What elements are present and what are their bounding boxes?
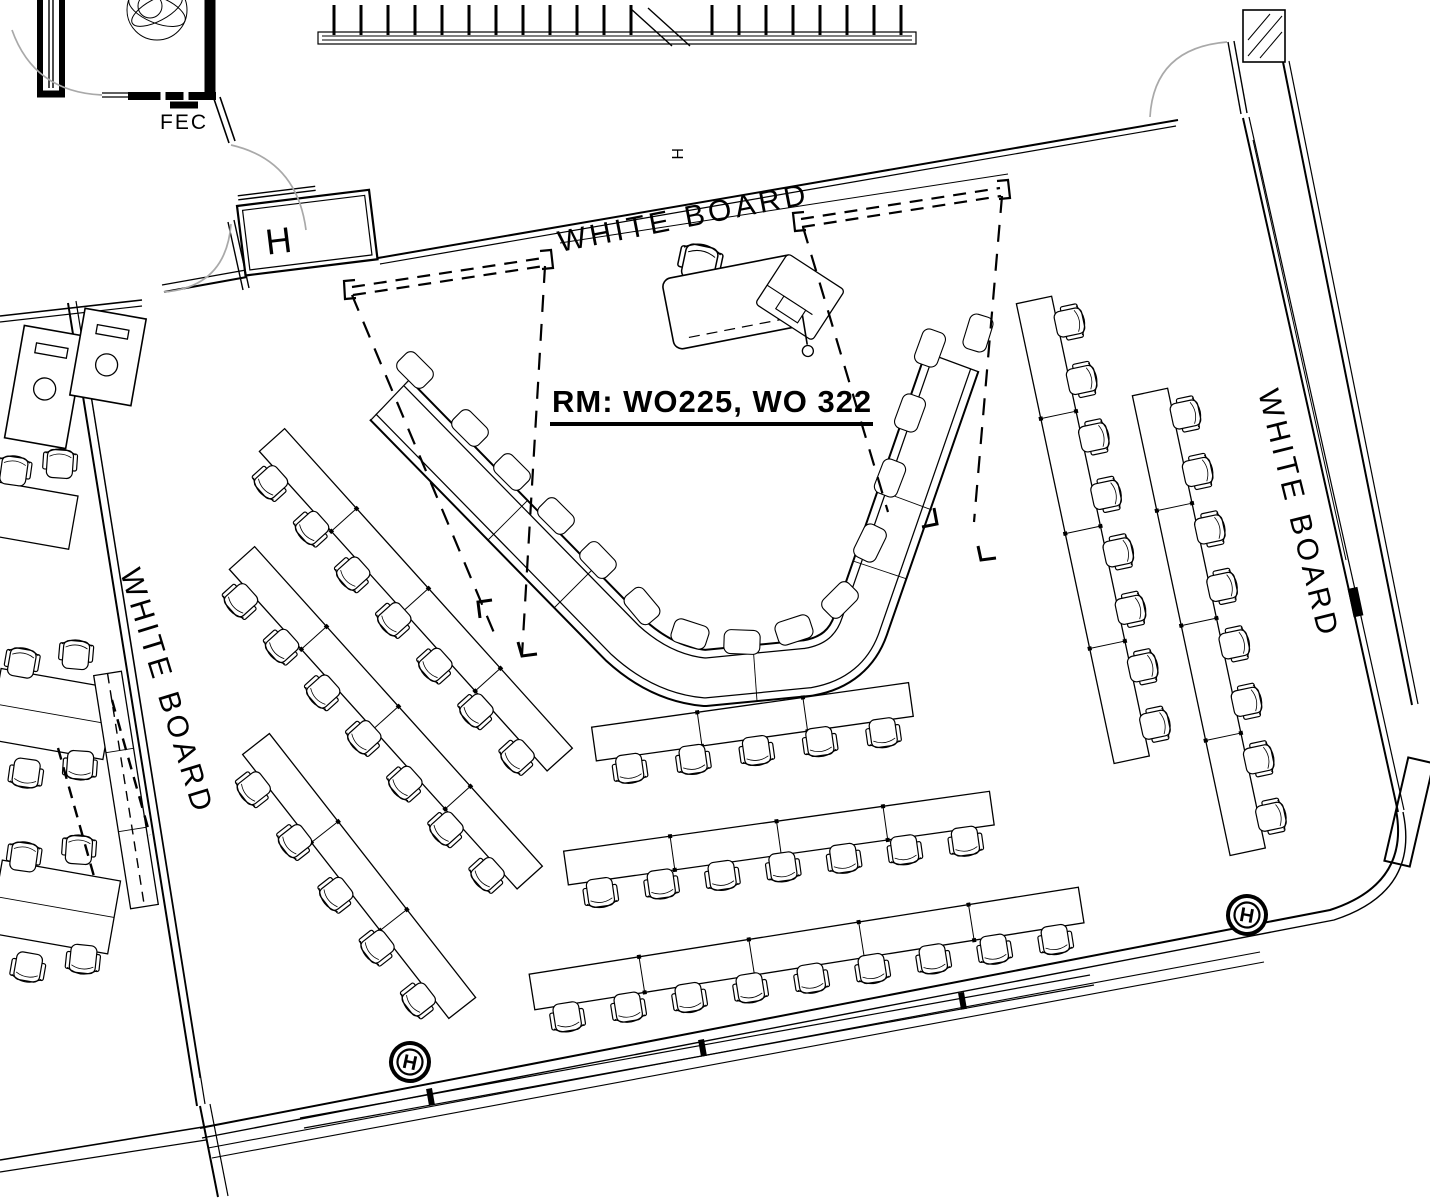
door-arc [12, 30, 102, 95]
door-leaves [228, 41, 1247, 290]
floor-box-symbols: H H [387, 893, 1269, 1085]
chair-icon [42, 448, 78, 479]
instructor-podium [661, 240, 851, 358]
table [0, 480, 78, 549]
wall-joint [1348, 587, 1363, 616]
fec-label: FEC [160, 111, 208, 134]
table-bank-B3 [529, 885, 1088, 1036]
chair-icon [7, 757, 45, 790]
wall-column [1384, 757, 1430, 866]
chair-icon [58, 639, 94, 671]
wall-console [94, 671, 159, 908]
table-bank-R1 [1014, 291, 1175, 764]
tablet-chair-icon [394, 349, 436, 391]
floor-plan-svg: H [0, 0, 1430, 1200]
chair-icon [65, 943, 102, 975]
column-sketch [124, 0, 189, 40]
room-title: RM: WO225, WO 322 [552, 384, 872, 419]
door-arcs [12, 30, 1227, 292]
door-arc [1150, 42, 1227, 117]
door-hold-label: H [263, 219, 294, 263]
table [0, 860, 121, 954]
table-bank-B2 [563, 789, 998, 911]
table-bank-L2 [209, 545, 544, 907]
chair-icon [9, 950, 48, 984]
room-title-group: RM: WO225, WO 322 [550, 384, 873, 424]
tablet-chair-icon [724, 629, 761, 654]
floor-plan-canvas: H [0, 0, 1430, 1200]
floor-box-symbol: H [1225, 893, 1269, 937]
top-window-wall [318, 5, 916, 46]
mouse-icon [800, 343, 815, 358]
chair-icon [62, 750, 98, 781]
floor-box-symbol: H [387, 1039, 432, 1084]
fixture-box [70, 308, 146, 405]
door-hold-mark: H [668, 148, 685, 160]
vestibule: H [236, 180, 378, 276]
chair-icon [61, 834, 97, 865]
chair-icon [0, 454, 33, 487]
